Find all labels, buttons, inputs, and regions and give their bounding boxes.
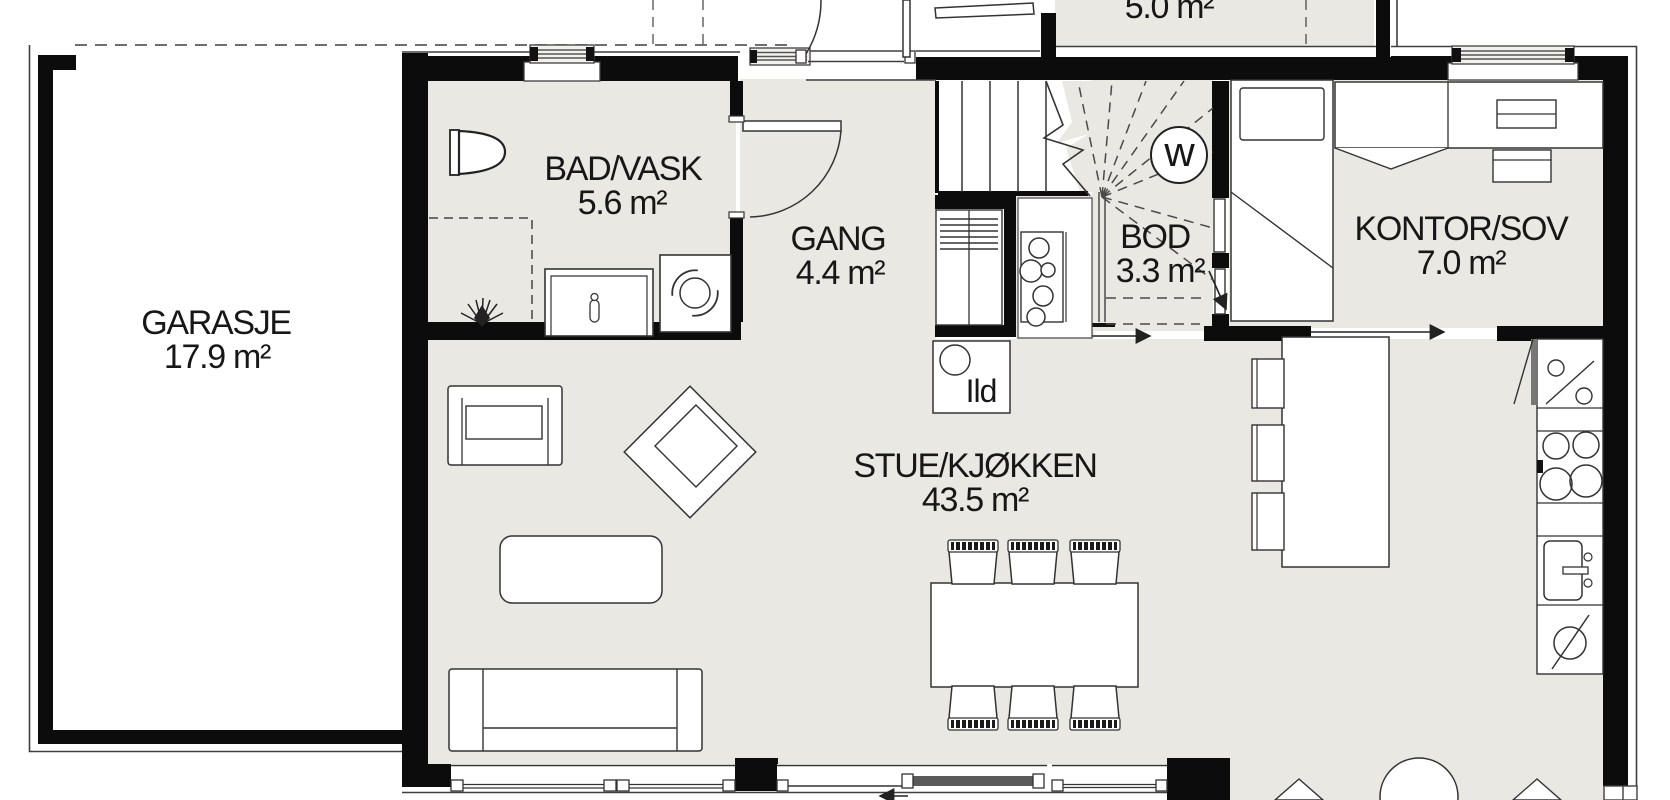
svg-text:4.4 m²: 4.4 m² — [796, 254, 886, 292]
svg-text:7.0 m²: 7.0 m² — [1417, 244, 1507, 282]
svg-text:Ild: Ild — [966, 373, 997, 409]
svg-text:5.6 m²: 5.6 m² — [578, 184, 668, 222]
svg-text:BAD/VASK: BAD/VASK — [544, 150, 703, 188]
svg-text:KONTOR/SOV: KONTOR/SOV — [1354, 210, 1569, 248]
svg-text:43.5 m²: 43.5 m² — [922, 481, 1029, 519]
svg-text:5.0 m²: 5.0 m² — [1125, 0, 1215, 26]
svg-text:BOD: BOD — [1120, 218, 1190, 256]
svg-text:3.3 m²: 3.3 m² — [1116, 252, 1206, 290]
svg-text:17.9 m²: 17.9 m² — [164, 338, 271, 376]
svg-text:w: w — [1163, 128, 1195, 175]
svg-text:STUE/KJØKKEN: STUE/KJØKKEN — [853, 447, 1096, 485]
svg-text:GARASJE: GARASJE — [141, 304, 291, 342]
svg-text:GANG: GANG — [791, 220, 886, 258]
